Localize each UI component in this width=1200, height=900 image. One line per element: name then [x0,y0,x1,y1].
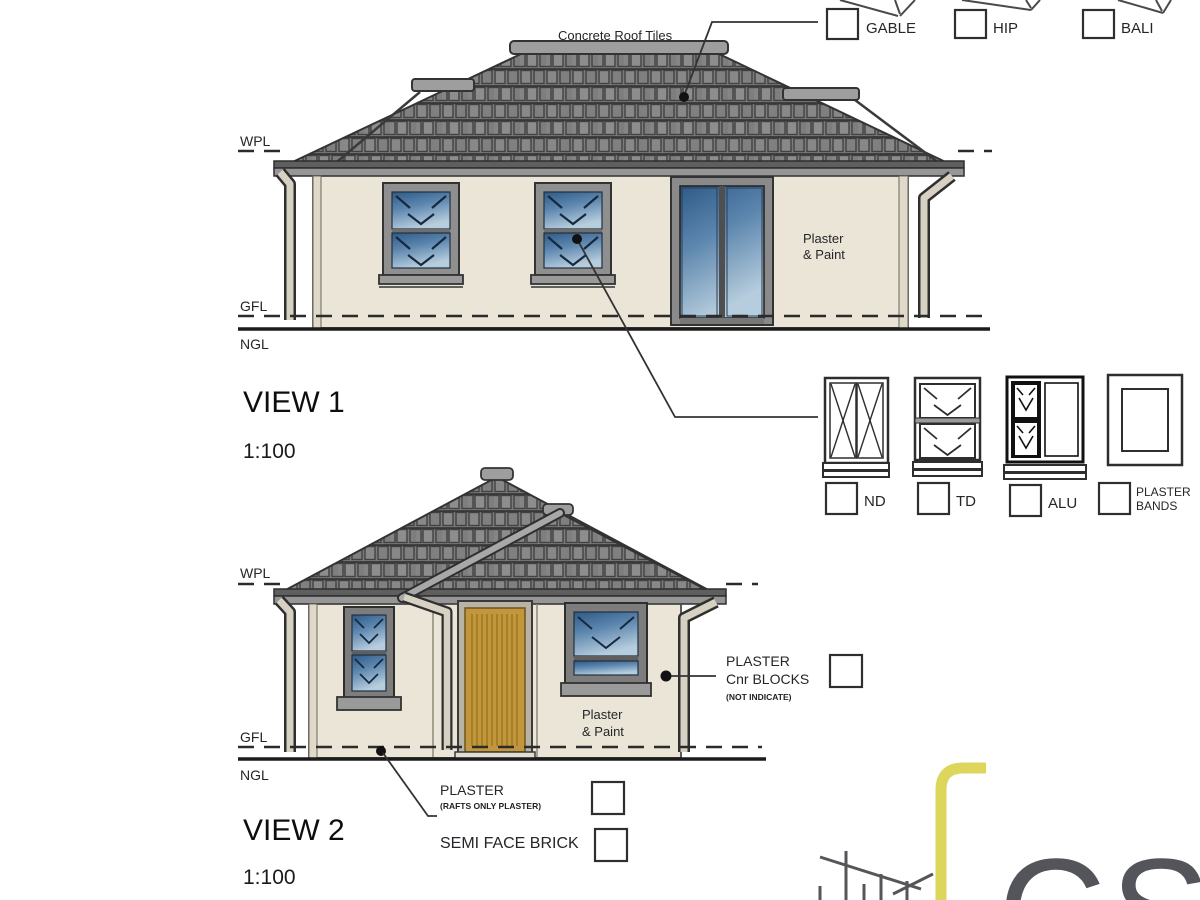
view1-downpipe-left [280,172,290,320]
alu-window-icon [1004,377,1086,479]
view2-gfl-label: GFL [240,729,267,745]
view1-downpipe-right [924,176,952,318]
view2-eave-band [274,589,726,596]
view2-downpipe-right [684,602,716,752]
semi-face-brick-label: SEMI FACE BRICK [440,835,579,852]
td-label: TD [956,493,976,510]
nd-label: ND [864,493,886,510]
view1-wall-finish-line1: Plaster [803,231,844,246]
view1-scale: 1:100 [243,440,296,463]
drawing-canvas: Plaster & Paint WPL GFL NGL Concrete Roo… [0,0,1200,900]
bali-checkbox[interactable] [1083,10,1114,38]
nd-checkbox[interactable] [826,483,857,514]
view2-window-right [561,603,651,696]
plaster-checkbox[interactable] [592,782,624,814]
bali-label: BALI [1121,20,1154,37]
view1-ridge-cap-left [412,79,474,91]
view2-door [455,601,535,759]
plaster-bands-label-line1: PLASTER [1136,485,1191,499]
gable-checkbox[interactable] [827,9,858,39]
roof-type-legend: GABLE HIP BALI [827,0,1171,39]
semi-face-brick-checkbox[interactable] [595,829,627,861]
window-type-leader-dot [572,234,582,244]
logo-yellow-stroke-icon [941,768,986,900]
view2-ridge-cap-main [481,468,513,480]
view2-title: VIEW 2 [243,814,345,847]
view2-wpl-label: WPL [240,565,271,581]
view1-corner-trim-left [313,176,321,328]
view2-downpipe-left [279,600,290,752]
td-checkbox[interactable] [918,483,949,514]
corner-blocks-line2: Cnr BLOCKS [726,671,809,687]
view1-wall-finish-line2: & Paint [803,247,845,262]
view1-title: VIEW 1 [243,386,345,419]
hip-label: HIP [993,20,1018,37]
plaster-note: (RAFTS ONLY PLASTER) [440,801,541,811]
view2-wall-finish-line1: Plaster [582,707,623,722]
logo-drafting-sketch-icon [820,851,933,900]
view2-scale: 1:100 [243,866,296,889]
view1-roof [282,53,956,167]
view1-window-1 [379,183,463,287]
alu-checkbox[interactable] [1010,485,1041,516]
roof-tiles-label: Concrete Roof Tiles [558,28,673,43]
view1-elevation: Plaster & Paint [274,41,964,328]
bali-roof-icon [1118,0,1171,13]
logo-initials: CS [998,827,1200,900]
td-window-icon [913,378,982,476]
view1-ridge-cap-right [783,88,859,100]
roof-tiles-leader-dot [679,92,689,102]
plaster-line1: PLASTER [440,782,504,798]
view1-corner-trim-right [899,176,908,328]
hip-checkbox[interactable] [955,10,986,38]
nd-window-icon [823,378,889,477]
view2-window-left [337,607,401,710]
view1-window-2 [531,183,615,287]
plaster-leader [383,753,437,816]
view1-wpl-label: WPL [240,133,271,149]
view1-ngl-label: NGL [240,336,269,352]
view2-corner-trim-left [309,604,317,758]
alu-label: ALU [1048,495,1077,512]
view1-gfl-label: GFL [240,298,267,314]
plaster-bands-icon [1108,375,1182,465]
view1-fascia [274,168,964,176]
view1-eave-band [274,161,964,168]
corner-blocks-checkbox[interactable] [830,655,862,687]
plaster-bands-checkbox[interactable] [1099,483,1130,514]
corner-blocks-leader-dot [661,671,672,682]
view2-wall-finish-line2: & Paint [582,724,624,739]
corner-blocks-line1: PLASTER [726,653,790,669]
drawing-sheet: Plaster & Paint WPL GFL NGL Concrete Roo… [0,0,1200,900]
view2-ngl-label: NGL [240,767,269,783]
corner-blocks-note: (NOT INDICATE) [726,692,792,702]
view1-sliding-door [671,177,773,325]
hip-roof-icon [962,0,1040,10]
view2-elevation: Plaster & Paint [274,468,726,759]
gable-label: GABLE [866,20,916,37]
company-logo: CS [820,768,1200,900]
plaster-bands-label-line2: BANDS [1136,499,1177,513]
